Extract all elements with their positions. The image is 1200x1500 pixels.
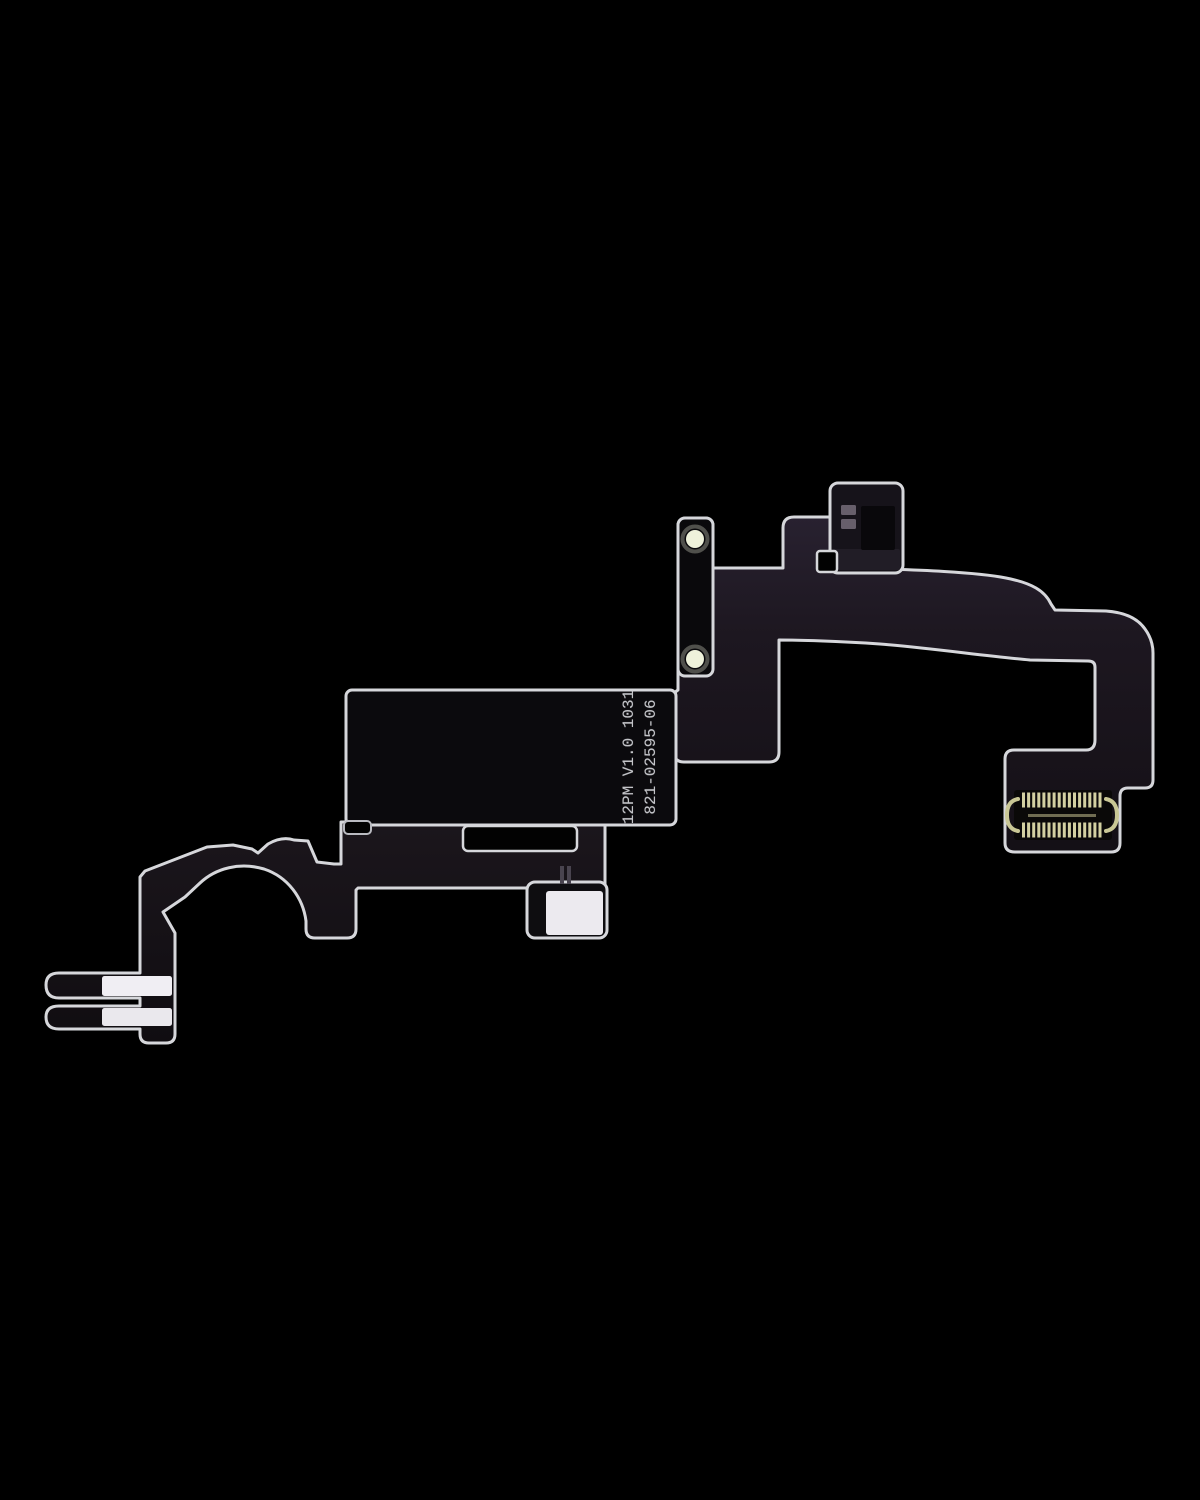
solder-pad-block	[527, 882, 607, 938]
cutout-notch-module	[817, 551, 837, 572]
board-connector	[1007, 790, 1117, 840]
pins-mid-line	[1028, 814, 1096, 817]
solder-pad-large	[546, 891, 603, 935]
module-pad-2	[841, 519, 856, 529]
prong-pad-lower	[102, 1008, 172, 1026]
module-pad-1	[841, 505, 856, 515]
component-mark-1	[560, 866, 564, 884]
prong-pad-upper	[102, 976, 172, 996]
component-mark-2	[567, 866, 571, 884]
sensor-module	[830, 483, 903, 573]
cutout-notch-panel	[463, 826, 577, 851]
cutout-notch-tab	[344, 821, 371, 834]
sensor-aperture	[861, 506, 895, 550]
product-photo-stage: 12PM V1.0 1031 821-02595-06	[0, 0, 1200, 1500]
part-number-panel	[346, 690, 676, 825]
screw-hole-top	[686, 530, 704, 548]
screw-hole-bottom	[686, 650, 704, 668]
flex-cable-illustration	[0, 0, 1200, 1500]
sensor-module-lower-zone	[833, 549, 900, 570]
